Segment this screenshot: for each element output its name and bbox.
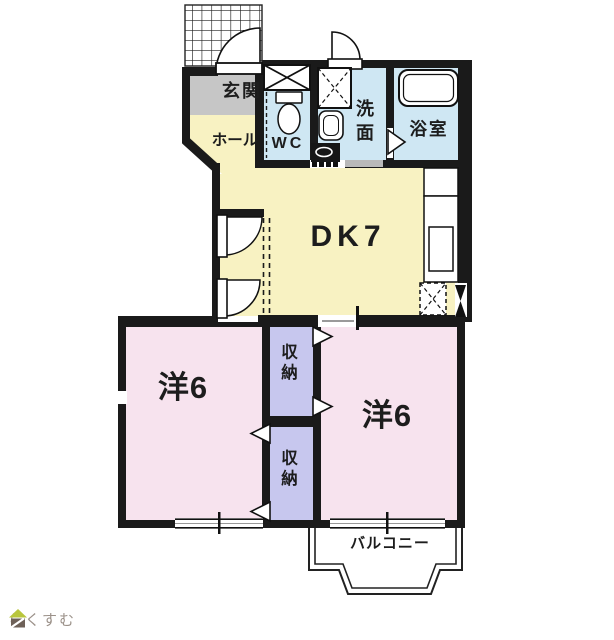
senmen-label: 洗面: [355, 99, 373, 159]
genkan-label: 玄関: [214, 82, 270, 101]
bedroom-right-label: 洋6: [350, 400, 424, 433]
hall-label: ホール: [204, 133, 266, 149]
floor-plan-drawing: [0, 0, 614, 640]
pipe-space-icon: [264, 65, 310, 90]
stove-icon: [311, 143, 340, 162]
kitchen-sink-icon: [429, 227, 453, 271]
floor-plan: 玄関 ホール WC 洗面 浴室 DK7 洋6 洋6 収納 収納 バルコニー らく…: [0, 0, 614, 640]
left-wall-vent: [117, 391, 127, 404]
hall-door-panel: [217, 215, 227, 257]
back-door-arc: [332, 32, 360, 60]
closet-lower-label: 収納: [279, 449, 296, 513]
bedroom-left-door-panel: [217, 279, 227, 318]
washing-machine-pan-icon: [318, 68, 351, 108]
kitchen-counter: [424, 168, 458, 282]
entrance-door-panel: [216, 63, 262, 74]
house-icon: [8, 608, 28, 628]
refrigerator-space-icon: [420, 283, 446, 315]
washbasin-icon: [319, 111, 343, 140]
door-opening-tick: [356, 306, 359, 330]
wc-label: WC: [266, 136, 310, 153]
bathroom-label: 浴室: [400, 120, 458, 138]
senmen-opening: [345, 160, 383, 167]
bedroom-left-label: 洋6: [146, 372, 220, 405]
bathtub-icon: [399, 70, 458, 106]
closet-upper-label: 収納: [279, 343, 296, 407]
dk-label: DK7: [296, 221, 400, 253]
rakusumu-logo: らくすむ: [8, 608, 76, 630]
balcony-label: バルコニー: [337, 536, 443, 552]
bedroom-left-floor: [126, 327, 262, 520]
toilet-icon: [276, 92, 302, 134]
